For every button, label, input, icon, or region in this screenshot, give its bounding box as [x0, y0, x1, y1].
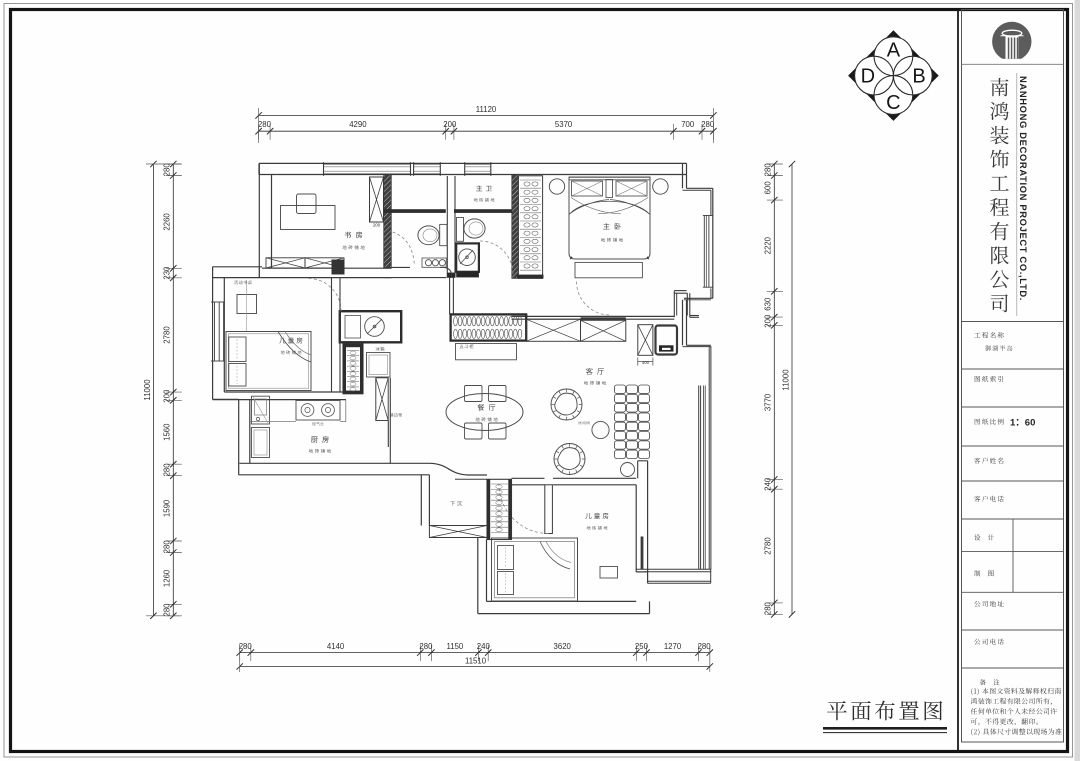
svg-text:230: 230 [162, 266, 171, 280]
svg-text:1270: 1270 [664, 642, 682, 651]
svg-text:280: 280 [419, 642, 433, 651]
svg-text:280: 280 [763, 601, 772, 615]
svg-text:2780: 2780 [763, 537, 772, 555]
svg-text:600: 600 [763, 181, 772, 195]
svg-text:280: 280 [162, 163, 171, 177]
svg-text:4290: 4290 [349, 120, 367, 129]
svg-text:2780: 2780 [162, 326, 171, 344]
svg-text:NANHONG DECORATION PROJECT CO.: NANHONG DECORATION PROJECT CO.,LTD. [1018, 76, 1029, 301]
svg-text:250: 250 [635, 642, 649, 651]
svg-text:5370: 5370 [555, 120, 573, 129]
svg-text:C: C [886, 92, 900, 114]
svg-text:630: 630 [763, 297, 772, 311]
svg-text:200: 200 [162, 389, 171, 403]
svg-text:3770: 3770 [763, 393, 772, 411]
svg-text:400: 400 [642, 360, 650, 365]
svg-text:11000: 11000 [143, 379, 152, 401]
svg-text:D: D [861, 66, 875, 88]
svg-text:1150: 1150 [447, 642, 464, 651]
svg-text:280: 280 [162, 603, 171, 617]
svg-text:280: 280 [162, 540, 171, 554]
svg-text:2260: 2260 [162, 213, 171, 231]
svg-text:3620: 3620 [554, 642, 572, 651]
svg-text:700: 700 [681, 120, 695, 129]
svg-text:200: 200 [373, 223, 381, 228]
svg-text:A: A [887, 39, 901, 61]
svg-text:11120: 11120 [476, 105, 497, 114]
svg-text:280: 280 [701, 120, 715, 129]
svg-text:2220: 2220 [763, 236, 772, 254]
svg-text:B: B [912, 66, 925, 88]
svg-text:11000: 11000 [782, 369, 791, 391]
svg-text:280: 280 [698, 642, 712, 651]
svg-text:280: 280 [162, 463, 171, 477]
svg-text:1：60: 1：60 [1010, 418, 1035, 429]
svg-text:200: 200 [443, 120, 457, 129]
svg-text:280: 280 [258, 120, 272, 129]
svg-text:1590: 1590 [162, 499, 171, 517]
svg-text:11510: 11510 [465, 657, 487, 666]
svg-text:280: 280 [763, 163, 772, 177]
svg-text:280: 280 [239, 642, 253, 651]
svg-text:1260: 1260 [162, 569, 171, 587]
svg-text:1560: 1560 [162, 423, 171, 441]
svg-text:240: 240 [477, 642, 491, 651]
svg-text:200: 200 [763, 314, 772, 328]
svg-text:4140: 4140 [327, 642, 345, 651]
svg-text:240: 240 [763, 477, 772, 491]
